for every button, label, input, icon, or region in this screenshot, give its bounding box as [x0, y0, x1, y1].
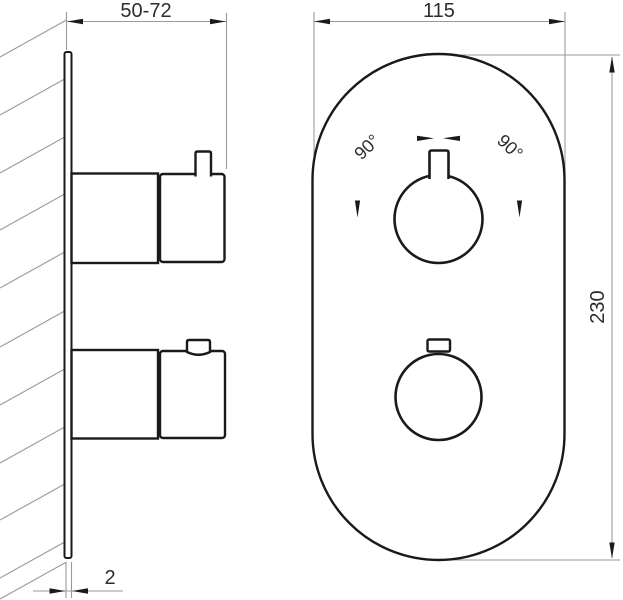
dim-plate-height-label: 230	[587, 290, 609, 323]
bottom-handle-lever-front	[428, 340, 451, 352]
top-handle-lever-front	[430, 151, 449, 180]
arrow-wall-depth-left	[67, 19, 83, 24]
arrow-width-left	[314, 19, 330, 24]
lower-handle-lever-side	[187, 340, 210, 355]
bottom-handle-front	[396, 354, 482, 440]
upper-handle-lever-side	[196, 152, 212, 177]
arrow-height-top	[609, 57, 614, 73]
cover-plate-front	[313, 54, 565, 560]
wall-hatching	[0, 20, 67, 599]
dim-plate-width-label: 115	[423, 0, 455, 22]
arrow-width-right	[549, 19, 565, 24]
arrow-thickness-left	[50, 588, 66, 593]
arrow-thickness-right	[72, 588, 88, 593]
top-handle-front	[395, 175, 483, 263]
dim-wall-depth-label: 50-72	[120, 0, 171, 22]
lower-handle-side	[160, 351, 225, 438]
lower-valve-body-side	[72, 350, 159, 439]
technical-drawing-canvas: 50-72 115 2 230 90° 90°	[0, 0, 623, 600]
dim-plate-thickness-label: 2	[104, 567, 115, 589]
dim-wall-depth-lines	[67, 12, 227, 169]
upper-valve-body-side	[72, 174, 159, 264]
upper-handle-side	[160, 174, 225, 262]
mounting-plate-side	[65, 52, 72, 558]
arrow-height-bottom	[609, 543, 614, 559]
mixer-installation-drawing: 50-72 115 2 230 90° 90°	[0, 0, 623, 600]
arrow-wall-depth-right	[210, 19, 226, 24]
